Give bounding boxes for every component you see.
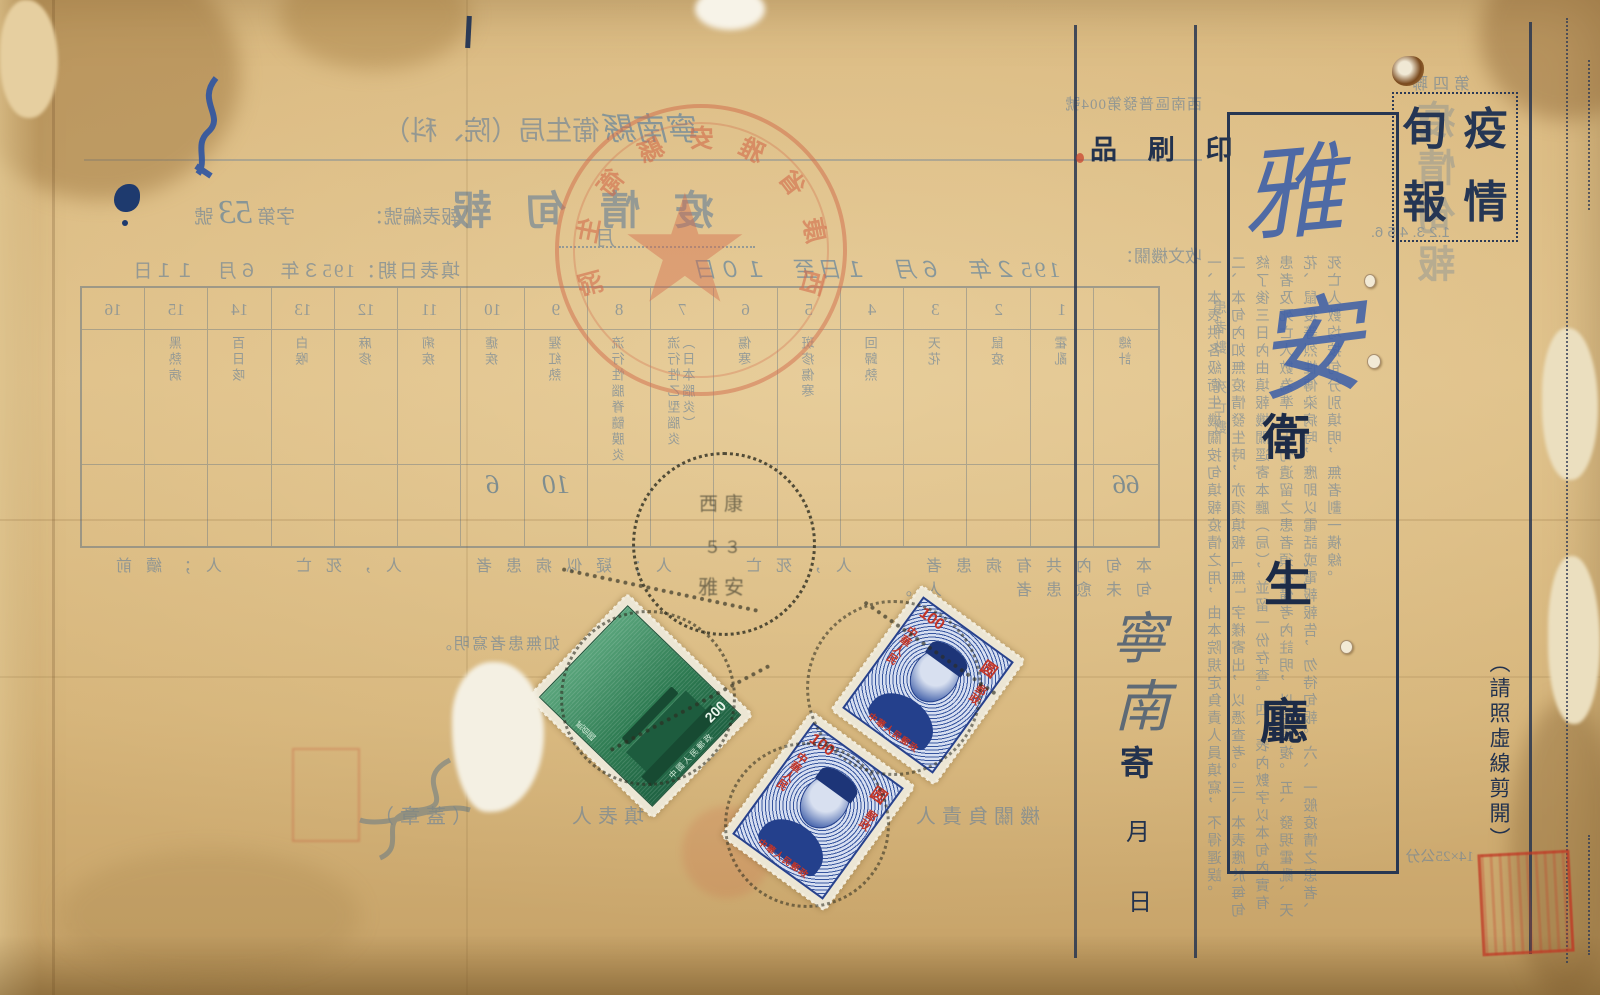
bleed-table-blank-cell (335, 508, 397, 546)
bleed-table-column-number: 1 (1031, 288, 1093, 330)
bleed-table-entry (335, 464, 397, 508)
bleed-table-column: 11痢疾 (397, 288, 460, 546)
bleed-signature-squiggle (350, 750, 480, 865)
bleed-dept-header: 寧南縣 衛生局（院、科） (383, 104, 702, 150)
seal-inner-ring (573, 122, 829, 378)
bleed-table-blank-cell (398, 508, 460, 546)
bleed-table-blank-cell (82, 508, 144, 546)
bleed-table-disease-name: 流行性腦脊髓膜炎 (588, 330, 650, 464)
tear-right-edge-1 (1542, 328, 1598, 480)
official-red-seal: ★ 西康省雅安縣衛生院 (555, 104, 847, 396)
bleed-table-disease-name: 黑熱病 (145, 330, 207, 464)
day-label: 日 (1128, 882, 1152, 917)
bleed-table-column-number: 12 (335, 288, 397, 330)
bleed-table-column: 3天花 (903, 288, 966, 546)
bleed-serial-handwritten: 53 (218, 194, 252, 231)
bleed-serial-suffix: 號 (194, 207, 213, 228)
tear-right-edge-2 (1548, 556, 1600, 724)
bleed-red-seal (292, 748, 360, 842)
scanned-document: 第四聯 疫情旬報 西南區普發第004號 收文機關： 寧南縣 衛生局（院、科） 疫… (0, 0, 1600, 995)
bleed-serial-line: 報表編號：字第 53 號 (194, 194, 460, 232)
seal-star-icon: ★ (618, 175, 752, 325)
bleed-table-column: 1霍亂 (1030, 288, 1093, 546)
crease-vertical-mid (466, 0, 468, 995)
bleed-dispatch-number: 西南區普發第004號 (1064, 93, 1202, 114)
bleed-table-disease-name: 天花 (904, 330, 966, 464)
seal-arc-char: 安 (689, 119, 714, 155)
bleed-table-blank-cell (462, 508, 524, 546)
org-char-ting: 廳 (1260, 682, 1308, 752)
postmark-date-digits: ５３ (635, 533, 813, 558)
bleed-dept-print: 衛生局（院、科） (383, 116, 599, 146)
bleed-table-disease-name: 鼠疫 (968, 330, 1030, 464)
handwritten-sender-char-2: 南 (1114, 662, 1170, 743)
pinhole-3 (1340, 640, 1353, 654)
bleed-table-disease-name: 百日咳 (209, 330, 271, 464)
bleed-table-column-number: 11 (398, 288, 460, 330)
bleed-table-column: 9猩紅熱10 (524, 288, 587, 546)
seal-arc-char: 院 (569, 266, 610, 299)
seal-arc-char: 衛 (588, 161, 632, 203)
postmark-circle-1: 西康 ５３ 雅安 (632, 452, 816, 636)
bleed-table-entry (145, 464, 207, 508)
bleed-table-column: 總計66 (1093, 288, 1158, 546)
bleed-table-entry (82, 464, 144, 508)
postmark-circle-4 (724, 742, 890, 908)
stain-bottom-left (60, 850, 360, 980)
bleed-serial-label: 報表編號： (365, 207, 460, 228)
bleed-table-blank-cell (272, 508, 334, 546)
seal-outer-ring (555, 104, 847, 396)
bleed-table-column: 4回歸熱 (840, 288, 903, 546)
bleed-table-disease-name: 流行性乙型腦炎（日本腦炎） (651, 330, 713, 464)
bleed-table-column-number: 10 (462, 288, 524, 330)
bleed-note-line: 如無患者寫明。 (434, 630, 560, 654)
edge-dotted-segment-bottom (1588, 835, 1590, 955)
bleed-table-column-number: 5 (778, 288, 840, 330)
panel-divider-line-1 (1074, 25, 1077, 958)
bleed-table-column-number: 8 (588, 288, 650, 330)
registration-tick-mark (465, 16, 472, 48)
bleed-table-disease-name: 回歸熱 (841, 330, 903, 464)
cut-instruction-note: （請照虛線剪開） (1484, 652, 1514, 877)
ink-blot (114, 184, 140, 212)
bleed-table-blank-cell (1031, 508, 1093, 546)
bleed-table-blank-cell (841, 508, 903, 546)
cut-line-solid (1529, 22, 1532, 954)
bleed-table-column-number: 15 (145, 288, 207, 330)
bleed-copy-label: 第四聯 (1407, 70, 1470, 94)
left-edge-strip (0, 0, 56, 995)
seal-arc-char: 康 (795, 215, 835, 247)
bleed-table-column: 13白喉 (271, 288, 334, 546)
bleed-table-column: 15黑熱病 (144, 288, 207, 546)
stain-top-middle (280, 0, 470, 70)
paper-damage-white-patch (452, 662, 544, 812)
bleed-summary-paragraph: 本旬內共有病患者 人，死亡 人；疑似病患者 人，死亡 人；續前旬未愈患者 人。 (84, 552, 1152, 600)
bleed-table-disease-name: 瘧疾 (462, 330, 524, 464)
burn-hole-blot (1392, 56, 1424, 86)
bleed-table-entry: 6 (462, 464, 524, 508)
org-char-sheng: 生 (1264, 545, 1312, 615)
send-label: 寄 (1120, 736, 1154, 785)
bleed-table-column-number: 4 (841, 288, 903, 330)
bleed-form-title: 疫 情 旬 報 (440, 178, 714, 236)
epidemic-report-corner-label: 旬 疫 報 情 (1392, 92, 1518, 242)
bleed-table-blank-cell (145, 508, 207, 546)
printed-matter-stamp: 品 刷 印 (1090, 128, 1245, 167)
pinhole-1 (1364, 274, 1376, 288)
bleed-table-entry (398, 464, 460, 508)
bleed-table-column: 14百日咳 (208, 288, 271, 546)
bleed-table-disease-name: 猩紅熱 (525, 330, 587, 464)
bleed-table-entry (1031, 464, 1093, 508)
handwritten-ink-swoosh (178, 72, 248, 182)
corner-char: 報 (1394, 167, 1455, 240)
bleed-table-column-number: 9 (525, 288, 587, 330)
bleed-table-column-number: 2 (968, 288, 1030, 330)
bleed-table-column-number: 7 (651, 288, 713, 330)
corner-char: 情 (1455, 167, 1516, 240)
seal-arc-char: 西 (793, 266, 834, 299)
bleed-table-disease-name: 總計 (1094, 330, 1158, 464)
bleed-table-entry: 66 (1094, 464, 1158, 508)
bleed-table-blank-cell (1094, 508, 1158, 546)
red-ink-speck (1076, 153, 1084, 163)
bleed-table-entry (904, 464, 966, 508)
ink-blot-dot (122, 220, 128, 226)
seal-arc-char: 縣 (631, 127, 669, 170)
bleed-table-blank-cell (904, 508, 966, 546)
bleed-table-entry (841, 464, 903, 508)
bleed-table-disease-name (82, 330, 144, 464)
seal-arc-char: 雅 (734, 127, 772, 170)
bleed-filled-date: 填表日期：195３年 ６月 １１日 (131, 256, 460, 283)
bleed-table-column-number (1094, 288, 1158, 330)
bleed-table-disease-name: 霍亂 (1031, 330, 1093, 464)
handwritten-place-char-1: 雅 (1234, 108, 1348, 263)
bleed-table-disease-name: 傷寒 (715, 330, 777, 464)
bleed-table: 總計661霍亂2鼠疫3天花4回歸熱5斑疹傷寒6傷寒7流行性乙型腦炎（日本腦炎）8… (80, 286, 1160, 548)
org-char-wei: 衛 (1262, 398, 1310, 468)
red-square-seal (1477, 850, 1574, 957)
bleed-table-disease-name: 斑疹傷寒 (778, 330, 840, 464)
bleed-table-blank-cell (968, 508, 1030, 546)
bleed-serial-mid: 字第 (257, 207, 295, 228)
bleed-table-column: 2鼠疫 (967, 288, 1030, 546)
postmark-top-chars: 西康 (635, 489, 813, 516)
bleed-table-column-number: 3 (904, 288, 966, 330)
bleed-table-disease-name: 白喉 (272, 330, 334, 464)
bleed-table-column: 16 (82, 288, 144, 546)
bleed-subtitle-month: 月 (559, 222, 755, 248)
bottom-shadow-band (0, 935, 1600, 995)
bleed-table-column: 12麻疹 (334, 288, 397, 546)
bleed-table-column-number: 14 (209, 288, 271, 330)
postmark-bottom-chars: 雅安 (635, 571, 813, 600)
bleed-table-column-number: 16 (82, 288, 144, 330)
month-label: 月 (1126, 812, 1150, 847)
bleed-table-column-number: 6 (715, 288, 777, 330)
bleed-dept-handwritten: 寧南縣 (606, 111, 702, 147)
corner-char: 旬 (1394, 94, 1455, 167)
bleed-table-blank-cell (525, 508, 587, 546)
bleed-table-entry (209, 464, 271, 508)
bleed-period-line: 195２年 ６月 １日至 １０日 (693, 252, 1060, 284)
bleed-recv-label: 收文機關： (1117, 242, 1202, 267)
pinhole-2 (1367, 354, 1381, 369)
seal-arc-char: 省 (772, 161, 816, 203)
bleed-table-entry (272, 464, 334, 508)
bleed-table-disease-name: 麻疹 (335, 330, 397, 464)
perforation-dotted-line (1566, 18, 1568, 963)
bleed-table-entry: 10 (525, 464, 587, 508)
bleed-table-blank-cell (209, 508, 271, 546)
bleed-table-disease-name: 痢疾 (398, 330, 460, 464)
corner-char: 疫 (1455, 94, 1516, 167)
paper-damage-top-spot (695, 0, 765, 30)
bleed-table-entry (968, 464, 1030, 508)
tear-top-left-corner (0, 0, 58, 118)
crease-vertical-left (52, 0, 55, 995)
bleed-table-column-number: 13 (272, 288, 334, 330)
edge-dotted-segment-top (1588, 60, 1590, 210)
bleed-table-column: 10瘧疾6 (461, 288, 524, 546)
seal-arc-char: 生 (568, 215, 608, 247)
bleed-size-note: 14×25公分 (1406, 845, 1474, 866)
